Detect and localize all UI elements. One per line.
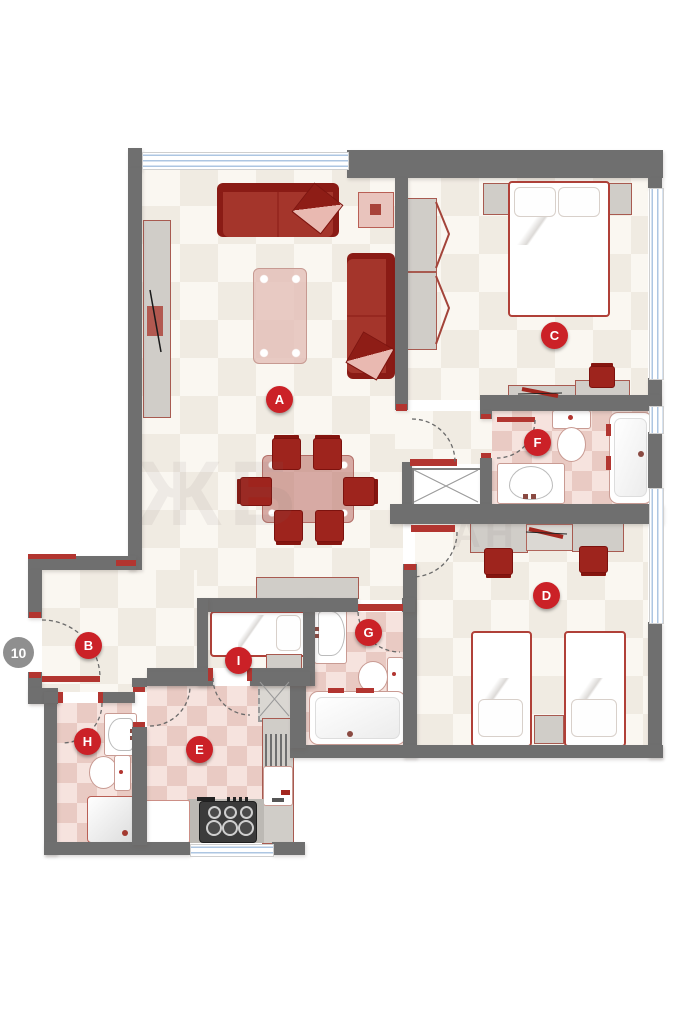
toilet-button <box>392 672 396 676</box>
door-sill <box>411 525 455 532</box>
wall <box>128 168 142 570</box>
door-jamb <box>481 453 491 458</box>
sink-basin <box>108 718 133 751</box>
wardrobe-panel <box>405 198 437 272</box>
sink-faucet <box>272 798 284 802</box>
toilet-button <box>119 770 123 774</box>
bed-pillow <box>571 699 617 737</box>
window <box>190 844 274 857</box>
wall <box>132 727 147 845</box>
burner <box>222 820 238 836</box>
window <box>649 488 664 624</box>
kitchen-table <box>140 800 190 843</box>
wall <box>402 598 415 612</box>
floor-corridor <box>395 411 492 464</box>
wall <box>290 678 306 748</box>
wall <box>272 842 305 855</box>
burner <box>224 806 237 819</box>
desk-chair <box>579 546 608 573</box>
room-marker-d: D <box>533 582 560 609</box>
door-sill <box>358 604 403 611</box>
wardrobe-panel <box>405 272 437 350</box>
door-sill <box>396 404 407 411</box>
room-marker-g: G <box>355 619 382 646</box>
sink-faucet <box>315 627 319 631</box>
wall <box>390 504 663 524</box>
wall <box>347 150 663 178</box>
door-jamb <box>481 414 491 419</box>
towel <box>606 456 611 470</box>
bed-pillow <box>276 615 301 651</box>
dining-chair <box>240 477 272 506</box>
wall <box>480 395 660 411</box>
blanket-fold <box>511 217 563 245</box>
window <box>142 152 349 170</box>
door-jamb <box>133 722 145 727</box>
door-leaf <box>497 417 535 422</box>
wall <box>290 745 663 758</box>
towel <box>356 688 374 693</box>
bathtub-inner <box>614 418 647 497</box>
room-marker-c: C <box>541 322 568 349</box>
room-marker-b: B <box>75 632 102 659</box>
room-marker-a: A <box>266 386 293 413</box>
burner <box>240 806 253 819</box>
dining-chair <box>272 438 301 470</box>
sideboard <box>256 577 359 599</box>
wall <box>250 672 310 686</box>
room-marker-i: I <box>225 647 252 674</box>
door-leaf <box>42 676 100 682</box>
door-jamb <box>58 692 63 703</box>
blanket-fold <box>238 615 266 649</box>
bed-pillow <box>514 187 556 217</box>
shower <box>87 796 136 843</box>
wall <box>200 598 358 612</box>
burner <box>208 806 221 819</box>
bed-pillow <box>558 187 600 217</box>
desk-chair <box>589 366 615 388</box>
counter-vent <box>265 734 290 768</box>
wall <box>100 692 135 703</box>
door-jamb <box>29 672 41 678</box>
dining-chair <box>274 510 303 542</box>
wall <box>147 672 213 686</box>
door-sill <box>410 459 457 466</box>
dining-chair <box>343 477 375 506</box>
wall <box>648 432 662 488</box>
dining-chair <box>313 438 342 470</box>
wall <box>132 678 147 687</box>
door-jamb <box>29 612 41 618</box>
room-marker-e: E <box>186 736 213 763</box>
toilet-bowl <box>557 427 586 462</box>
window <box>649 406 664 434</box>
burner <box>206 820 222 836</box>
toilet-button <box>568 415 573 420</box>
wall <box>648 622 662 758</box>
shower-drain <box>122 830 128 836</box>
sink-faucet <box>315 634 319 638</box>
bathtub-drain <box>638 451 644 457</box>
nightstand <box>483 183 511 215</box>
faucet-handle <box>281 790 290 795</box>
room-marker-f: F <box>524 429 551 456</box>
bathtub-drain <box>347 731 353 737</box>
wall <box>28 570 42 618</box>
sink-basin <box>318 611 345 656</box>
room-marker-h: H <box>74 728 101 755</box>
wall <box>648 178 662 188</box>
towel <box>606 424 611 436</box>
door-sill <box>404 564 416 570</box>
wall <box>403 564 417 758</box>
wall <box>44 842 190 855</box>
unit-number-badge: 10 <box>3 637 34 668</box>
built-in-closet <box>412 468 484 508</box>
towel <box>328 688 344 693</box>
desk-shelf <box>526 524 574 551</box>
nightstand <box>534 715 564 744</box>
sink-faucet <box>523 494 528 499</box>
window <box>649 188 664 380</box>
door-sill <box>116 560 136 566</box>
tv-screen <box>147 306 163 336</box>
desk-chair <box>484 548 513 575</box>
door-jamb <box>208 668 213 681</box>
dining-chair <box>315 510 344 542</box>
door-jamb <box>98 692 103 703</box>
wall <box>128 148 142 170</box>
wall <box>480 458 492 506</box>
side-table-decor <box>370 204 381 215</box>
bed-pillow <box>478 699 523 737</box>
sink-faucet <box>531 494 536 499</box>
floor-plan: ЖБ АН A B C D E F G H I 10 <box>0 0 683 1024</box>
wall <box>44 692 57 855</box>
toilet-tank <box>387 657 404 695</box>
coffee-table <box>253 268 307 364</box>
bathtub-inner <box>315 697 400 739</box>
wall <box>395 178 408 410</box>
burner <box>238 820 254 836</box>
door-sill <box>28 554 76 559</box>
door-jamb <box>133 687 145 692</box>
